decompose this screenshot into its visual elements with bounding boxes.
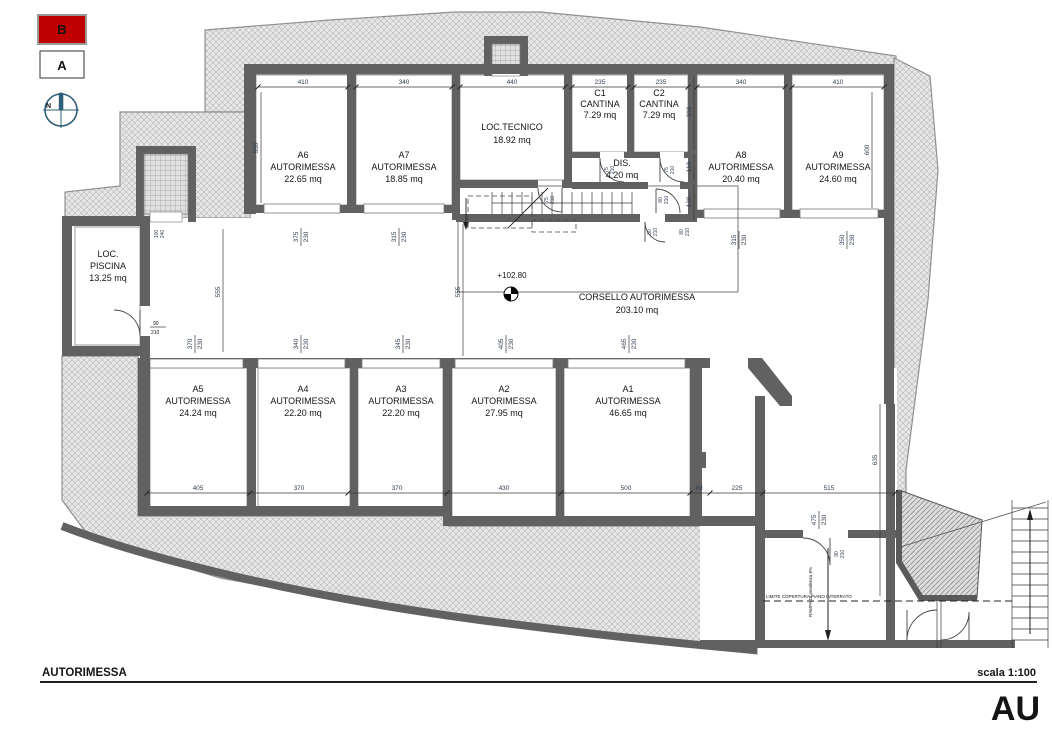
svg-text:430: 430 bbox=[499, 485, 510, 492]
room-a7 bbox=[356, 75, 452, 205]
svg-text:350: 350 bbox=[839, 234, 846, 245]
svg-text:AUTORIMESSA: AUTORIMESSA bbox=[270, 162, 335, 172]
svg-text:555: 555 bbox=[215, 286, 222, 297]
svg-text:A7: A7 bbox=[398, 150, 409, 160]
level-value: +102.80 bbox=[497, 271, 527, 280]
svg-text:210: 210 bbox=[670, 166, 676, 175]
north-label: N bbox=[46, 103, 51, 110]
svg-text:230: 230 bbox=[631, 338, 638, 349]
svg-text:13.25 mq: 13.25 mq bbox=[89, 273, 127, 283]
svg-text:210: 210 bbox=[685, 228, 691, 237]
svg-text:230: 230 bbox=[401, 231, 408, 242]
svg-text:340: 340 bbox=[293, 338, 300, 349]
svg-text:AUTORIMESSA: AUTORIMESSA bbox=[270, 396, 335, 406]
svg-text:DIS.: DIS. bbox=[613, 158, 631, 168]
svg-text:AUTORIMESSA: AUTORIMESSA bbox=[165, 396, 230, 406]
svg-text:24.60 mq: 24.60 mq bbox=[819, 174, 857, 184]
svg-text:210: 210 bbox=[653, 228, 659, 237]
svg-text:20.40 mq: 20.40 mq bbox=[722, 174, 760, 184]
svg-text:370: 370 bbox=[294, 485, 305, 492]
svg-text:230: 230 bbox=[405, 338, 412, 349]
svg-text:405: 405 bbox=[498, 338, 505, 349]
svg-text:4.20 mq: 4.20 mq bbox=[606, 170, 639, 180]
svg-text:210: 210 bbox=[840, 550, 846, 559]
svg-text:AUTORIMESSA: AUTORIMESSA bbox=[371, 162, 436, 172]
svg-text:C2: C2 bbox=[653, 88, 665, 98]
svg-text:465: 465 bbox=[621, 338, 628, 349]
room-piscina bbox=[75, 227, 140, 345]
svg-text:22.20 mq: 22.20 mq bbox=[382, 408, 420, 418]
title-block: AUTORIMESSA scala 1:100 AU bbox=[40, 667, 1040, 728]
svg-text:440: 440 bbox=[507, 79, 518, 86]
svg-text:230: 230 bbox=[303, 231, 310, 242]
svg-text:A9: A9 bbox=[832, 150, 843, 160]
svg-text:315: 315 bbox=[391, 231, 398, 242]
svg-text:A3: A3 bbox=[395, 384, 406, 394]
svg-text:370: 370 bbox=[392, 485, 403, 492]
north-compass-icon: N bbox=[43, 92, 79, 128]
svg-text:PISCINA: PISCINA bbox=[90, 261, 126, 271]
svg-text:80: 80 bbox=[695, 485, 703, 492]
svg-text:340: 340 bbox=[399, 79, 410, 86]
marker-a-label: A bbox=[57, 58, 67, 73]
drawing-title: AUTORIMESSA bbox=[42, 667, 127, 679]
svg-text:110: 110 bbox=[686, 161, 693, 172]
svg-text:A6: A6 bbox=[297, 150, 308, 160]
marker-b-label: B bbox=[57, 22, 66, 37]
svg-text:210: 210 bbox=[550, 196, 556, 205]
svg-text:410: 410 bbox=[833, 79, 844, 86]
svg-text:A4: A4 bbox=[297, 384, 308, 394]
svg-text:27.95 mq: 27.95 mq bbox=[485, 408, 523, 418]
ramp-note-label: RAMPA DI pendenza 8% bbox=[808, 567, 813, 617]
svg-text:410: 410 bbox=[298, 79, 309, 86]
svg-text:22.20 mq: 22.20 mq bbox=[284, 408, 322, 418]
svg-text:500: 500 bbox=[621, 485, 632, 492]
svg-text:310: 310 bbox=[686, 106, 693, 117]
svg-text:CANTINA: CANTINA bbox=[580, 99, 620, 109]
svg-text:230: 230 bbox=[821, 514, 828, 525]
svg-text:LOC.TECNICO: LOC.TECNICO bbox=[481, 122, 543, 132]
svg-text:AUTORIMESSA: AUTORIMESSA bbox=[368, 396, 433, 406]
svg-text:235: 235 bbox=[656, 79, 667, 86]
svg-text:18.92 mq: 18.92 mq bbox=[493, 135, 531, 145]
svg-text:345: 345 bbox=[395, 338, 402, 349]
svg-text:AUTORIMESSA: AUTORIMESSA bbox=[805, 162, 870, 172]
svg-text:A8: A8 bbox=[735, 150, 746, 160]
door-dim-lift: 100240 bbox=[154, 230, 166, 239]
svg-text:370: 370 bbox=[187, 338, 194, 349]
legend: B A N bbox=[38, 15, 86, 128]
svg-text:120: 120 bbox=[686, 196, 693, 207]
svg-text:24.24 mq: 24.24 mq bbox=[179, 408, 217, 418]
svg-text:515: 515 bbox=[824, 485, 835, 492]
svg-text:AUTORIMESSA: AUTORIMESSA bbox=[471, 396, 536, 406]
svg-text:555: 555 bbox=[455, 286, 462, 297]
svg-text:315: 315 bbox=[731, 234, 738, 245]
svg-text:A1: A1 bbox=[622, 384, 633, 394]
svg-text:225: 225 bbox=[732, 485, 743, 492]
svg-text:AUTORIMESSA: AUTORIMESSA bbox=[595, 396, 660, 406]
external-wedge bbox=[899, 490, 982, 598]
svg-text:C1: C1 bbox=[594, 88, 606, 98]
svg-text:405: 405 bbox=[193, 485, 204, 492]
svg-text:AUTORIMESSA: AUTORIMESSA bbox=[708, 162, 773, 172]
svg-text:46.65 mq: 46.65 mq bbox=[609, 408, 647, 418]
floor-plan-canvas: LIMITE COPERTURA PIANO INTERRATO RAMPA D… bbox=[0, 0, 1052, 739]
room-a8 bbox=[697, 75, 785, 210]
svg-text:203.10 mq: 203.10 mq bbox=[616, 305, 659, 315]
room-a9 bbox=[792, 75, 884, 210]
svg-text:22.65 mq: 22.65 mq bbox=[284, 174, 322, 184]
svg-text:635: 635 bbox=[872, 454, 879, 465]
svg-text:7.29 mq: 7.29 mq bbox=[643, 110, 676, 120]
svg-text:A2: A2 bbox=[498, 384, 509, 394]
level-crosshair-icon bbox=[504, 287, 518, 301]
svg-text:340: 340 bbox=[736, 79, 747, 86]
svg-text:475: 475 bbox=[811, 514, 818, 525]
svg-text:240: 240 bbox=[160, 230, 166, 239]
scale-label: scala 1:100 bbox=[977, 667, 1036, 679]
svg-text:600: 600 bbox=[864, 144, 871, 155]
sheet-code: AU bbox=[991, 690, 1040, 728]
svg-text:90: 90 bbox=[153, 321, 159, 327]
svg-text:375: 375 bbox=[293, 231, 300, 242]
svg-text:CORSELLO AUTORIMESSA: CORSELLO AUTORIMESSA bbox=[579, 292, 695, 302]
svg-text:CANTINA: CANTINA bbox=[639, 99, 679, 109]
svg-text:230: 230 bbox=[741, 234, 748, 245]
svg-text:7.29 mq: 7.29 mq bbox=[584, 110, 617, 120]
svg-text:235: 235 bbox=[595, 79, 606, 86]
svg-text:555: 555 bbox=[253, 142, 260, 153]
floor-plan-drawing: LIMITE COPERTURA PIANO INTERRATO RAMPA D… bbox=[0, 0, 1052, 739]
svg-text:230: 230 bbox=[508, 338, 515, 349]
svg-text:LOC.: LOC. bbox=[97, 249, 118, 259]
svg-text:18.85 mq: 18.85 mq bbox=[385, 174, 423, 184]
svg-text:230: 230 bbox=[849, 234, 856, 245]
svg-text:230: 230 bbox=[197, 338, 204, 349]
svg-text:230: 230 bbox=[303, 338, 310, 349]
svg-text:210: 210 bbox=[151, 330, 160, 336]
svg-text:210: 210 bbox=[664, 196, 670, 205]
lift-shaft bbox=[136, 146, 196, 222]
svg-text:A5: A5 bbox=[192, 384, 203, 394]
room-a6 bbox=[256, 75, 348, 205]
